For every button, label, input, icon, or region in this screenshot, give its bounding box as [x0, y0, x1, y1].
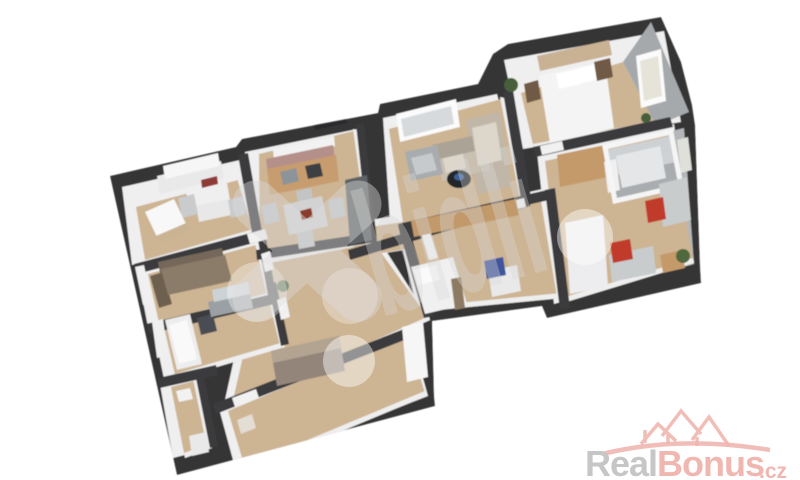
svg-text:Bonus: Bonus [657, 443, 764, 480]
svg-text:.cz: .cz [759, 460, 787, 480]
svg-text:Real: Real [585, 443, 657, 480]
